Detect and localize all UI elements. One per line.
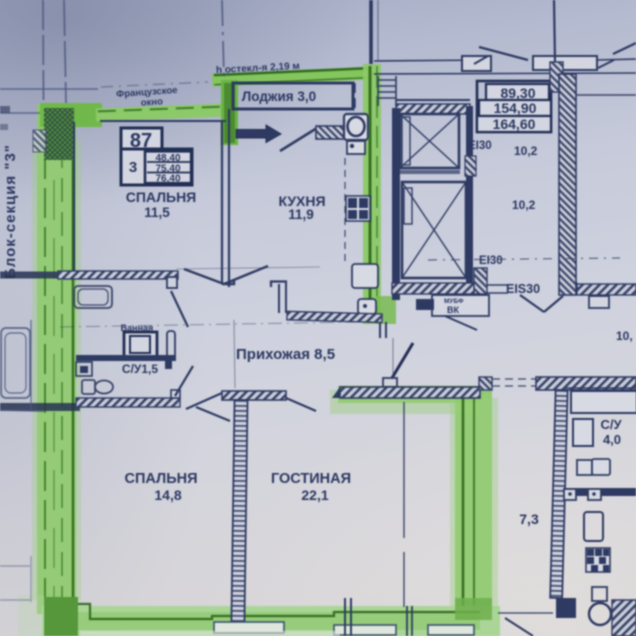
- svg-text:154,90: 154,90: [494, 100, 537, 116]
- svg-text:164,60: 164,60: [493, 116, 536, 132]
- svg-text:76,40: 76,40: [155, 174, 180, 185]
- svg-text:Лоджия 3,0: Лоджия 3,0: [242, 89, 316, 104]
- svg-text:СПАЛЬНЯ: СПАЛЬНЯ: [126, 189, 197, 205]
- svg-text:7,3: 7,3: [519, 511, 539, 527]
- svg-text:10,: 10,: [616, 329, 633, 343]
- svg-text:EI30: EI30: [479, 255, 503, 267]
- svg-text:3: 3: [129, 159, 137, 176]
- svg-text:87: 87: [130, 130, 152, 152]
- svg-text:ВК: ВК: [447, 305, 459, 315]
- svg-text:ГОСТИНАЯ: ГОСТИНАЯ: [271, 471, 351, 487]
- svg-text:С/У: С/У: [600, 417, 622, 432]
- svg-text:10,2: 10,2: [514, 144, 538, 158]
- svg-text:МУБФ: МУБФ: [444, 298, 464, 305]
- svg-text:EIS30: EIS30: [506, 282, 540, 296]
- svg-text:С/У1,5: С/У1,5: [122, 362, 158, 376]
- svg-text:Блок-секция "3": Блок-секция "3": [2, 144, 19, 279]
- svg-text:ВП: ВП: [420, 304, 429, 310]
- svg-text:11,5: 11,5: [144, 205, 170, 220]
- svg-text:89,30: 89,30: [500, 85, 535, 101]
- svg-text:14,8: 14,8: [154, 487, 181, 503]
- svg-text:48,40: 48,40: [155, 153, 180, 164]
- svg-text:4,0: 4,0: [603, 432, 621, 447]
- svg-text:Прихожая 8,5: Прихожая 8,5: [236, 346, 335, 363]
- svg-text:11,9: 11,9: [288, 207, 314, 222]
- svg-text:10,2: 10,2: [512, 198, 536, 212]
- svg-text:окно: окно: [140, 96, 163, 109]
- svg-text:СПАЛЬНЯ: СПАЛЬНЯ: [124, 471, 197, 487]
- svg-text:EI30: EI30: [468, 140, 492, 152]
- svg-text:22,1: 22,1: [301, 487, 328, 503]
